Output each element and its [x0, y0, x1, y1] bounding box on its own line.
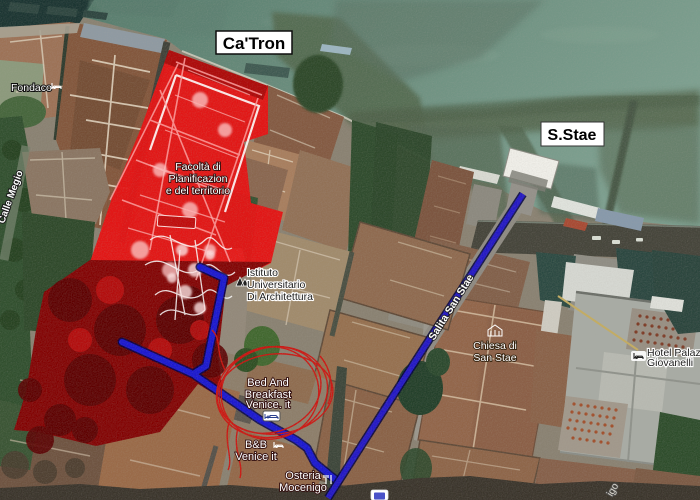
svg-text:Osteria: Osteria	[285, 470, 321, 482]
svg-text:Chiesa di: Chiesa di	[473, 340, 517, 352]
svg-text:Venice it: Venice it	[235, 451, 277, 463]
svg-text:Facoltà di: Facoltà di	[175, 161, 221, 173]
svg-text:Ca'Tron: Ca'Tron	[223, 34, 286, 53]
svg-text:Istituto: Istituto	[247, 267, 278, 279]
svg-text:Pianificazion: Pianificazion	[169, 173, 228, 185]
svg-text:Fondaco: Fondaco	[11, 82, 52, 94]
svg-text:Universitario: Universitario	[247, 279, 306, 291]
svg-text:Venice. it: Venice. it	[246, 399, 291, 411]
svg-text:Bed And: Bed And	[247, 377, 289, 389]
svg-text:San Stae: San Stae	[473, 352, 516, 364]
svg-text:B&B: B&B	[245, 439, 267, 451]
svg-text:Giovanelli: Giovanelli	[647, 357, 693, 369]
svg-text:S.Stae: S.Stae	[548, 127, 597, 144]
svg-text:e del territorio: e del territorio	[166, 185, 230, 197]
svg-text:Mocenigo: Mocenigo	[279, 482, 327, 494]
svg-text:Di Architettura: Di Architettura	[247, 291, 313, 303]
